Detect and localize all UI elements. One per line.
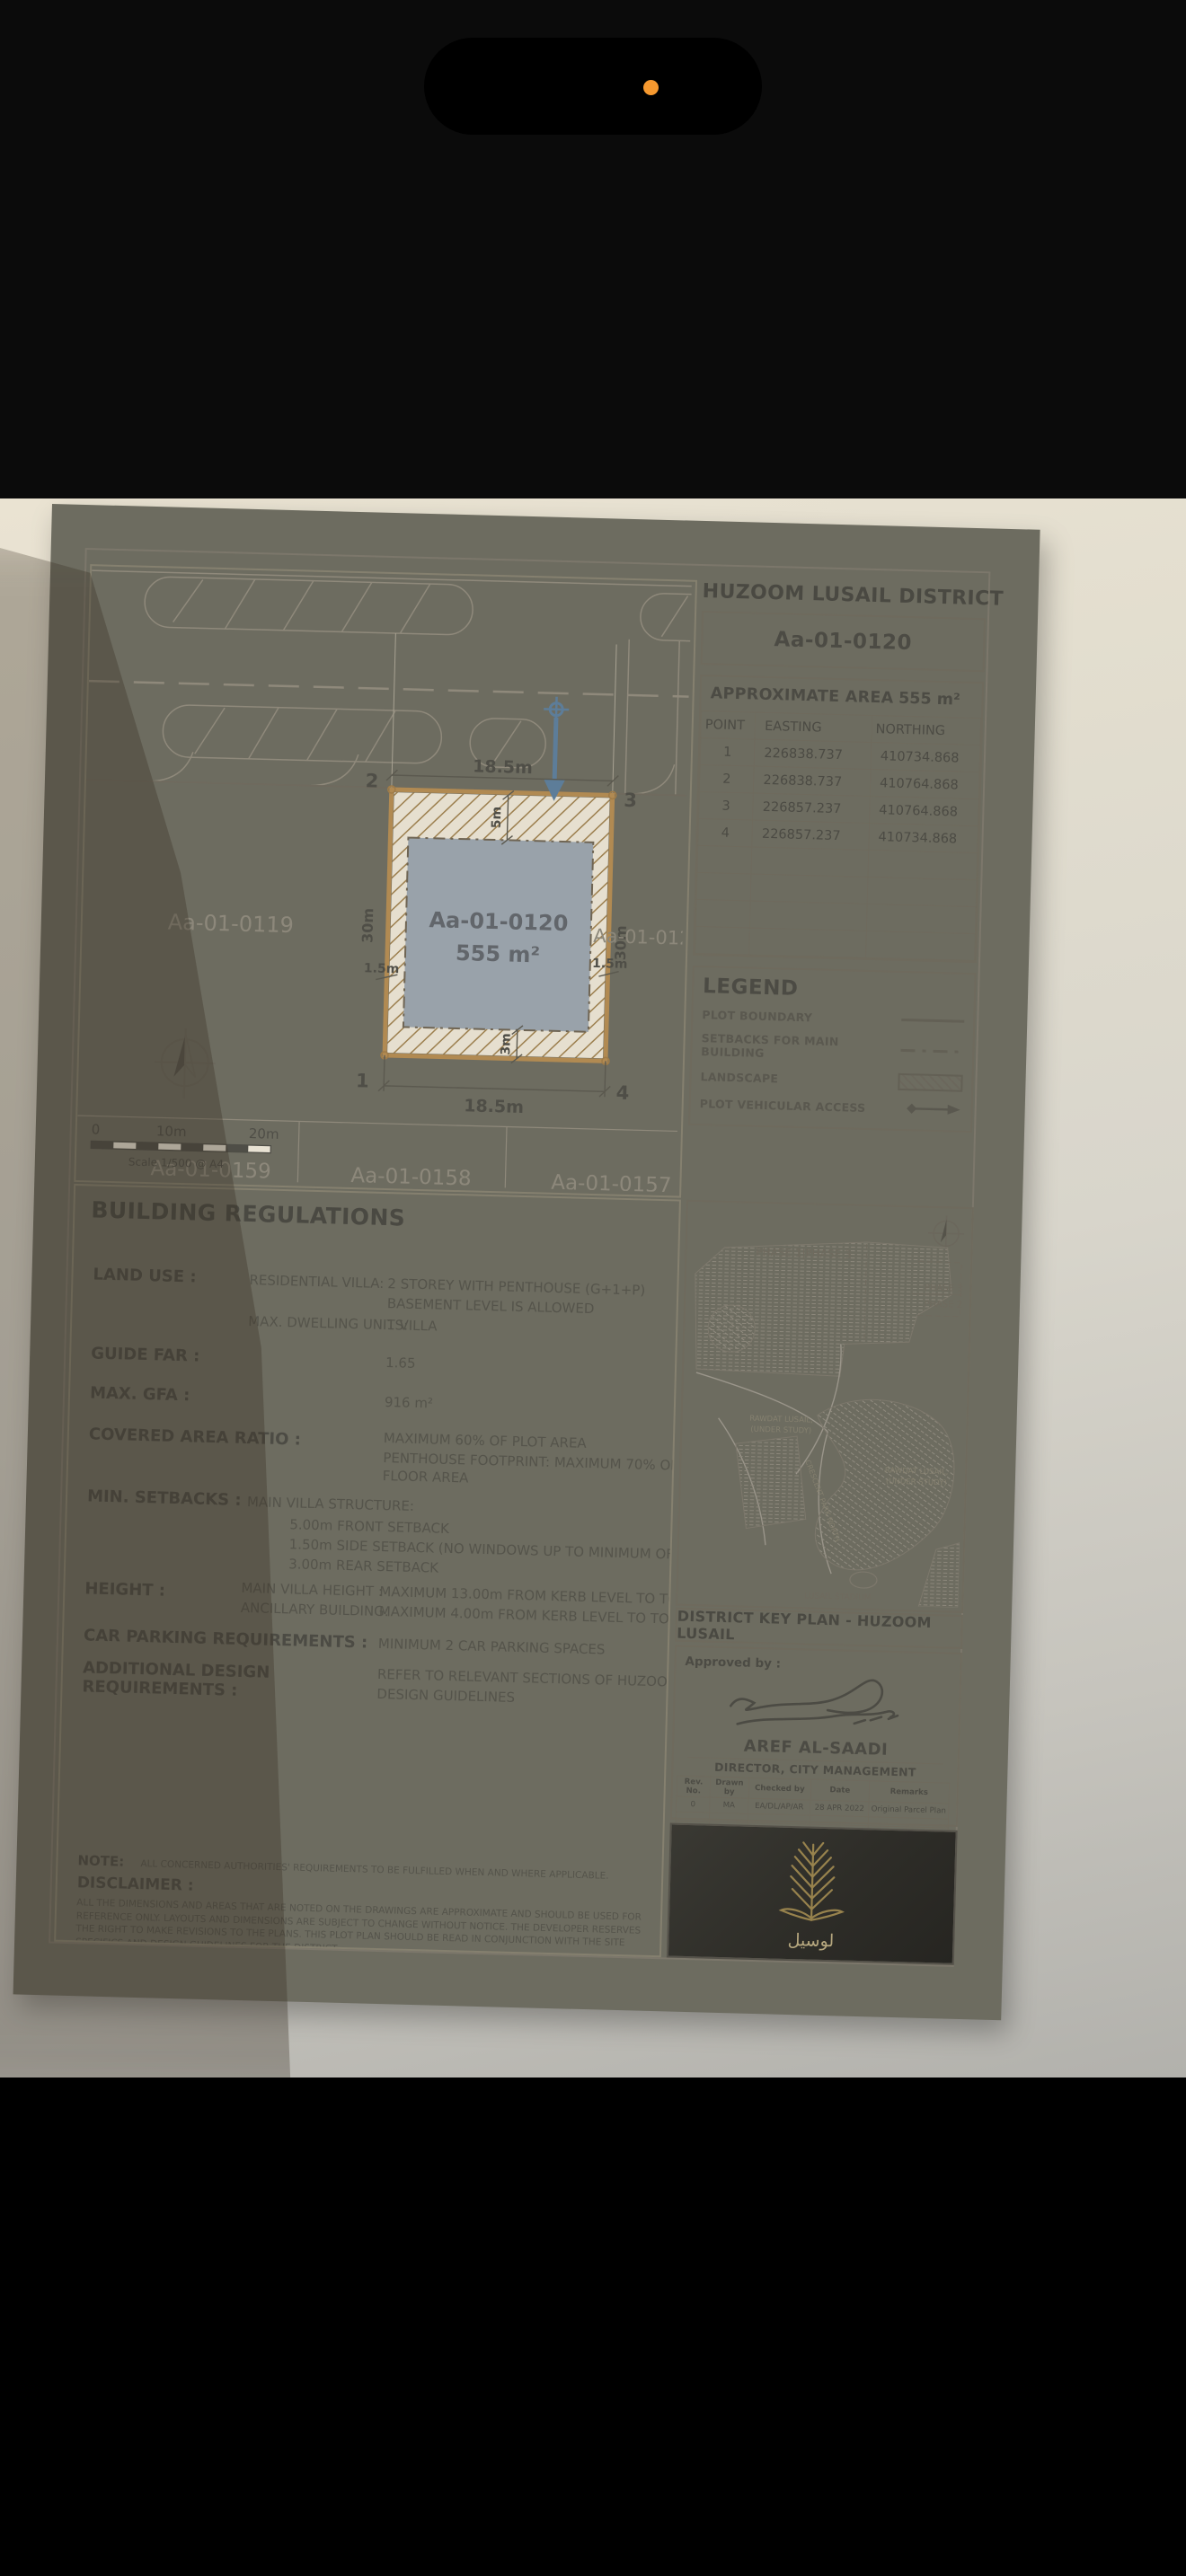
building-regulations-title: BUILDING REGULATIONS <box>91 1196 405 1231</box>
sheet-paper: 18.5m 18.5m 2 3 1 4 30m 30m 5m 3m 1.5m 1… <box>41 541 998 1974</box>
plot-label-right: Aa-01-0121 <box>593 925 692 949</box>
map-stadium-icon <box>850 1572 877 1589</box>
north-compass-icon <box>154 1028 217 1099</box>
road-lines <box>86 570 692 797</box>
info-column: HUZOOM LUSAIL DISTRICT Aa-01-0120 APPROX… <box>688 580 987 1133</box>
plot-label-left: Aa-01-0119 <box>167 910 294 939</box>
guide-far-label: GUIDE FAR : <box>91 1344 200 1365</box>
map-label-phase-top: PHASE 1|PHASE 3 <box>756 1246 852 1261</box>
plot-label-center-area: 555 m² <box>456 940 541 967</box>
legend-item-landscape: LANDSCAPE <box>700 1068 962 1092</box>
corner-2: 2 <box>365 770 378 791</box>
svg-text:0: 0 <box>92 1121 101 1137</box>
svg-text:20m: 20m <box>249 1125 279 1142</box>
dim-width-bottom: 18.5m <box>464 1096 524 1117</box>
legend-item-vehicular-access: PLOT VEHICULAR ACCESS <box>700 1095 962 1118</box>
area-table-title: APPROXIMATE AREA <box>710 684 893 707</box>
min-setbacks-label: MIN. SETBACKS : <box>87 1486 242 1509</box>
legend-item-plot-boundary: PLOT BOUNDARY <box>702 1008 964 1028</box>
svg-text:(UNDER STUDY): (UNDER STUDY) <box>750 1425 811 1436</box>
note-text: ALL CONCERNED AUTHORITIES' REQUIREMENTS … <box>140 1858 608 1882</box>
corner-1: 1 <box>356 1070 369 1091</box>
plot-label-center-id: Aa-01-0120 <box>429 907 569 936</box>
col-easting: EASTING <box>755 712 872 742</box>
dim-side-setback-left: 1.5m <box>364 961 400 976</box>
hatch-swatch-symbol <box>898 1073 962 1092</box>
land-use-label: LAND USE : <box>93 1265 197 1286</box>
dim-width-top: 18.5m <box>473 756 533 778</box>
car-parking-label: CAR PARKING REQUIREMENTS : <box>84 1626 368 1652</box>
dash-dot-line-symbol <box>898 1048 963 1053</box>
col-point: POINT <box>701 710 756 739</box>
height-label: HEIGHT : <box>84 1579 165 1600</box>
note-label: NOTE: <box>77 1852 124 1869</box>
lusail-palm-icon <box>669 1829 956 1929</box>
map-label-rawdat2: RAWDAT LUSAIL, <box>885 1467 949 1478</box>
plot-plan-sheet: 18.5m 18.5m 2 3 1 4 30m 30m 5m 3m 1.5m 1… <box>13 504 1040 2020</box>
area-value: 555 m² <box>898 690 960 710</box>
map-label-rawdat1: RAWDAT LUSAIL, <box>749 1415 813 1425</box>
map-label-stadium: LUSAIL STADIUM <box>804 1592 872 1602</box>
document-photo: 18.5m 18.5m 2 3 1 4 30m 30m 5m 3m 1.5m 1… <box>0 498 1186 2078</box>
disclaimer-text: ALL THE DIMENSIONS AND AREAS THAT ARE NO… <box>75 1896 659 1957</box>
svg-text:10m: 10m <box>156 1123 187 1140</box>
plot-label-bottom-center: Aa-01-0158 <box>350 1164 472 1191</box>
status-area <box>0 0 1186 498</box>
road-centerline <box>89 681 689 696</box>
lusail-logo-box: لوسيل <box>667 1823 958 1965</box>
site-plan-drawing: 18.5m 18.5m 2 3 1 4 30m 30m 5m 3m 1.5m 1… <box>75 566 692 1192</box>
solid-line-symbol <box>899 1019 964 1023</box>
dynamic-island-pill <box>424 38 762 135</box>
access-arrow-symbol <box>897 1100 961 1118</box>
plot-label-bottom-right: Aa-01-0157 <box>551 1171 672 1193</box>
map-compass-icon <box>928 1215 965 1252</box>
col-northing: NORTHING <box>872 715 981 745</box>
dim-depth-left: 30m <box>358 908 376 943</box>
district-title: HUZOOM LUSAIL DISTRICT <box>702 580 987 610</box>
svg-text:(UNDER STUDY): (UNDER STUDY) <box>886 1478 947 1488</box>
dim-side-setback-right: 1.5m <box>592 957 628 972</box>
legend-title: LEGEND <box>703 975 966 1005</box>
legend: LEGEND PLOT BOUNDARY SETBACKS FOR MAIN B… <box>688 966 977 1133</box>
disclaimer-label: DISCLAIMER : <box>77 1874 194 1894</box>
scale-note: Scale 1/500 @ A4 <box>128 1155 224 1170</box>
district-key-plan-map: PHASE 1|PHASE 3 PHASE 3 PHASE 2 RAWDAT L… <box>676 1200 974 1613</box>
signature <box>719 1668 918 1742</box>
map-west-cluster <box>733 1434 808 1530</box>
lusail-logo-arabic: لوسيل <box>668 1928 952 1954</box>
phone-screenshot: 18.5m 18.5m 2 3 1 4 30m 30m 5m 3m 1.5m 1… <box>0 0 1186 2576</box>
dim-rear-setback: 3m <box>499 1033 514 1055</box>
approximate-area-table: APPROXIMATE AREA 555 m² POINT EASTING NO… <box>693 675 984 963</box>
map-label-phase2: PHASE 2 <box>924 1300 962 1310</box>
camera-indicator-dot <box>643 80 659 95</box>
corner-3: 3 <box>624 790 637 811</box>
covered-area-ratio-label: COVERED AREA RATIO : <box>89 1425 302 1449</box>
corner-4: 4 <box>615 1082 629 1104</box>
district-key-plan-title: DISTRICT KEY PLAN - HUZOOM LUSAIL <box>675 1608 963 1649</box>
map-label-phase3: PHASE 3 <box>925 1284 963 1294</box>
dim-front-setback: 5m <box>490 807 505 829</box>
building-regulations-panel: BUILDING REGULATIONS LAND USE : RESIDENT… <box>54 1184 681 1957</box>
max-gfa-label: MAX. GFA : <box>90 1383 190 1405</box>
plot-id-box: Aa-01-0120 <box>701 611 986 672</box>
legend-item-setbacks: SETBACKS FOR MAIN BUILDING <box>701 1031 964 1065</box>
site-plan-panel: 18.5m 18.5m 2 3 1 4 30m 30m 5m 3m 1.5m 1… <box>74 564 697 1197</box>
approval-box: Approved by : AREF AL-SAADI DIRECTOR, CI… <box>670 1645 962 1827</box>
plot-id: Aa-01-0120 <box>774 628 912 655</box>
